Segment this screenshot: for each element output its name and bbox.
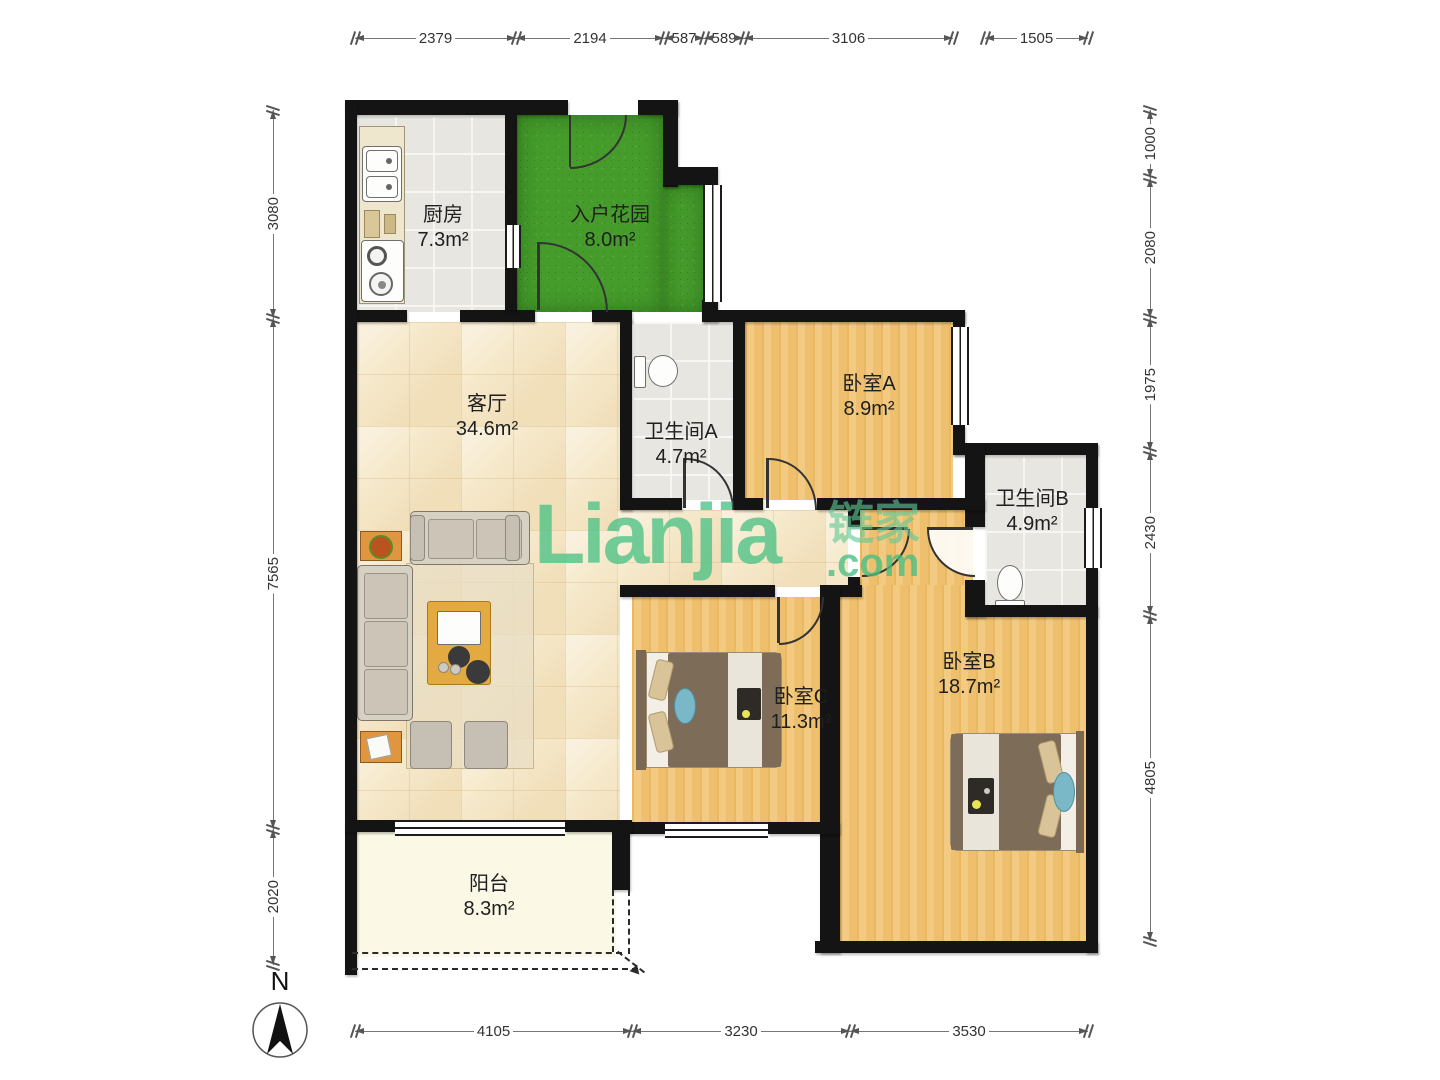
wall xyxy=(1086,568,1098,953)
wall xyxy=(345,820,395,832)
balcony-open-edge xyxy=(628,890,630,954)
room-name: 卧室C xyxy=(771,685,832,710)
wall xyxy=(768,822,840,834)
bed-b-tray xyxy=(968,778,994,814)
sofa-armrest xyxy=(505,515,520,561)
window xyxy=(703,185,722,302)
room-name: 阳台 xyxy=(463,872,514,897)
wall xyxy=(460,310,535,322)
compass-north-label: N xyxy=(271,966,290,996)
teacup xyxy=(466,660,490,684)
kitchen-rack xyxy=(364,210,380,238)
toilet-tank xyxy=(634,356,646,388)
wall xyxy=(733,318,745,498)
teacup xyxy=(450,664,461,675)
sofa-armrest xyxy=(410,515,425,561)
entry-door-leaf xyxy=(569,115,571,167)
window xyxy=(665,822,768,838)
entry-garden-floor-ext xyxy=(663,185,705,312)
wall xyxy=(820,585,840,953)
toilet-bowl xyxy=(648,355,678,387)
room-label-living: 客厅 34.6m² xyxy=(456,392,518,442)
room-label-bedroom-a: 卧室A 8.9m² xyxy=(842,372,895,422)
sink-basin xyxy=(366,150,398,172)
bathroom-b-door-leaf xyxy=(927,527,973,530)
compass-needle xyxy=(267,1004,293,1054)
bed-b-headboard xyxy=(1076,731,1084,853)
room-area: 34.6m² xyxy=(456,417,518,442)
room-label-garden: 入户花园 8.0m² xyxy=(570,203,650,253)
room-area: 7.3m² xyxy=(417,228,468,253)
wall xyxy=(965,443,985,527)
wall xyxy=(505,268,517,310)
room-area: 8.9m² xyxy=(842,397,895,422)
wall xyxy=(505,115,517,225)
teacup xyxy=(438,662,449,673)
tea-tray xyxy=(437,611,481,645)
sliding-door xyxy=(482,820,565,836)
lianjia-watermark-logo: Lianjia xyxy=(534,492,779,576)
room-area: 11.3m² xyxy=(771,710,832,735)
sofa-cushion xyxy=(428,519,474,559)
sofa-cushion xyxy=(364,621,408,667)
sofa-cushion xyxy=(364,573,408,619)
floorplan-canvas: 2379 2194 587 589 3106 1505 4105 3230 35… xyxy=(0,0,1440,1080)
bedroom-c-door-leaf xyxy=(777,597,780,643)
wall xyxy=(620,585,775,597)
room-area: 4.9m² xyxy=(995,512,1068,537)
room-area: 18.7m² xyxy=(938,675,1000,700)
room-label-bedroom-c: 卧室C 11.3m² xyxy=(771,685,832,735)
wall xyxy=(965,605,1098,617)
tray-dot xyxy=(984,788,990,794)
wall xyxy=(620,318,632,510)
sofa-cushion xyxy=(364,669,408,715)
window xyxy=(1084,508,1102,568)
plant-pot xyxy=(369,535,393,559)
ottoman xyxy=(410,721,452,769)
kitchen-pass-window xyxy=(505,225,521,268)
tray-dot xyxy=(972,800,981,809)
room-name: 卫生间A xyxy=(644,420,717,445)
room-label-balcony: 阳台 8.3m² xyxy=(463,872,514,922)
room-label-bathroom-a: 卫生间A 4.7m² xyxy=(644,420,717,470)
balcony-open-edge xyxy=(352,952,622,954)
room-name: 客厅 xyxy=(456,392,518,417)
balcony-open-edge xyxy=(612,890,614,952)
room-name: 卧室A xyxy=(842,372,895,397)
wall xyxy=(345,100,568,115)
north-compass-icon: N xyxy=(243,964,317,1070)
wall xyxy=(612,832,630,890)
sink-basin xyxy=(366,176,398,198)
tray-dot xyxy=(742,710,750,718)
magazine xyxy=(366,734,392,760)
wall xyxy=(565,820,632,832)
room-label-bathroom-b: 卫生间B 4.9m² xyxy=(995,487,1068,537)
room-label-kitchen: 厨房 7.3m² xyxy=(417,203,468,253)
bed-c-headboard xyxy=(636,650,646,770)
room-name: 厨房 xyxy=(417,203,468,228)
room-label-bedroom-b: 卧室B 18.7m² xyxy=(938,650,1000,700)
wall xyxy=(953,310,965,327)
lianjia-watermark-domain: .com xyxy=(826,543,919,583)
stove-burner xyxy=(367,246,387,266)
lianjia-watermark-cjk: 链家 xyxy=(828,500,920,546)
balcony-corner-arrow xyxy=(630,964,647,981)
window xyxy=(951,327,969,425)
wall xyxy=(345,100,357,975)
bed-b-cushion xyxy=(1053,772,1075,812)
room-name: 卫生间B xyxy=(995,487,1068,512)
room-area: 8.0m² xyxy=(570,228,650,253)
room-area: 4.7m² xyxy=(644,445,717,470)
room-name: 卧室B xyxy=(938,650,1000,675)
faucet-dot xyxy=(386,158,392,164)
garden-living-door-leaf xyxy=(537,242,540,310)
kettle-knob xyxy=(378,281,386,289)
window xyxy=(395,820,482,836)
room-name: 入户花园 xyxy=(570,203,650,228)
wall xyxy=(1086,443,1098,508)
ottoman xyxy=(464,721,508,769)
balcony-open-edge xyxy=(352,968,638,970)
wall xyxy=(815,941,1098,953)
kitchen-rack xyxy=(384,214,396,234)
faucet-dot xyxy=(386,184,392,190)
room-area: 8.3m² xyxy=(463,897,514,922)
toilet-bowl xyxy=(997,565,1023,601)
wall xyxy=(663,167,718,185)
bed-c-cushion xyxy=(674,688,696,724)
